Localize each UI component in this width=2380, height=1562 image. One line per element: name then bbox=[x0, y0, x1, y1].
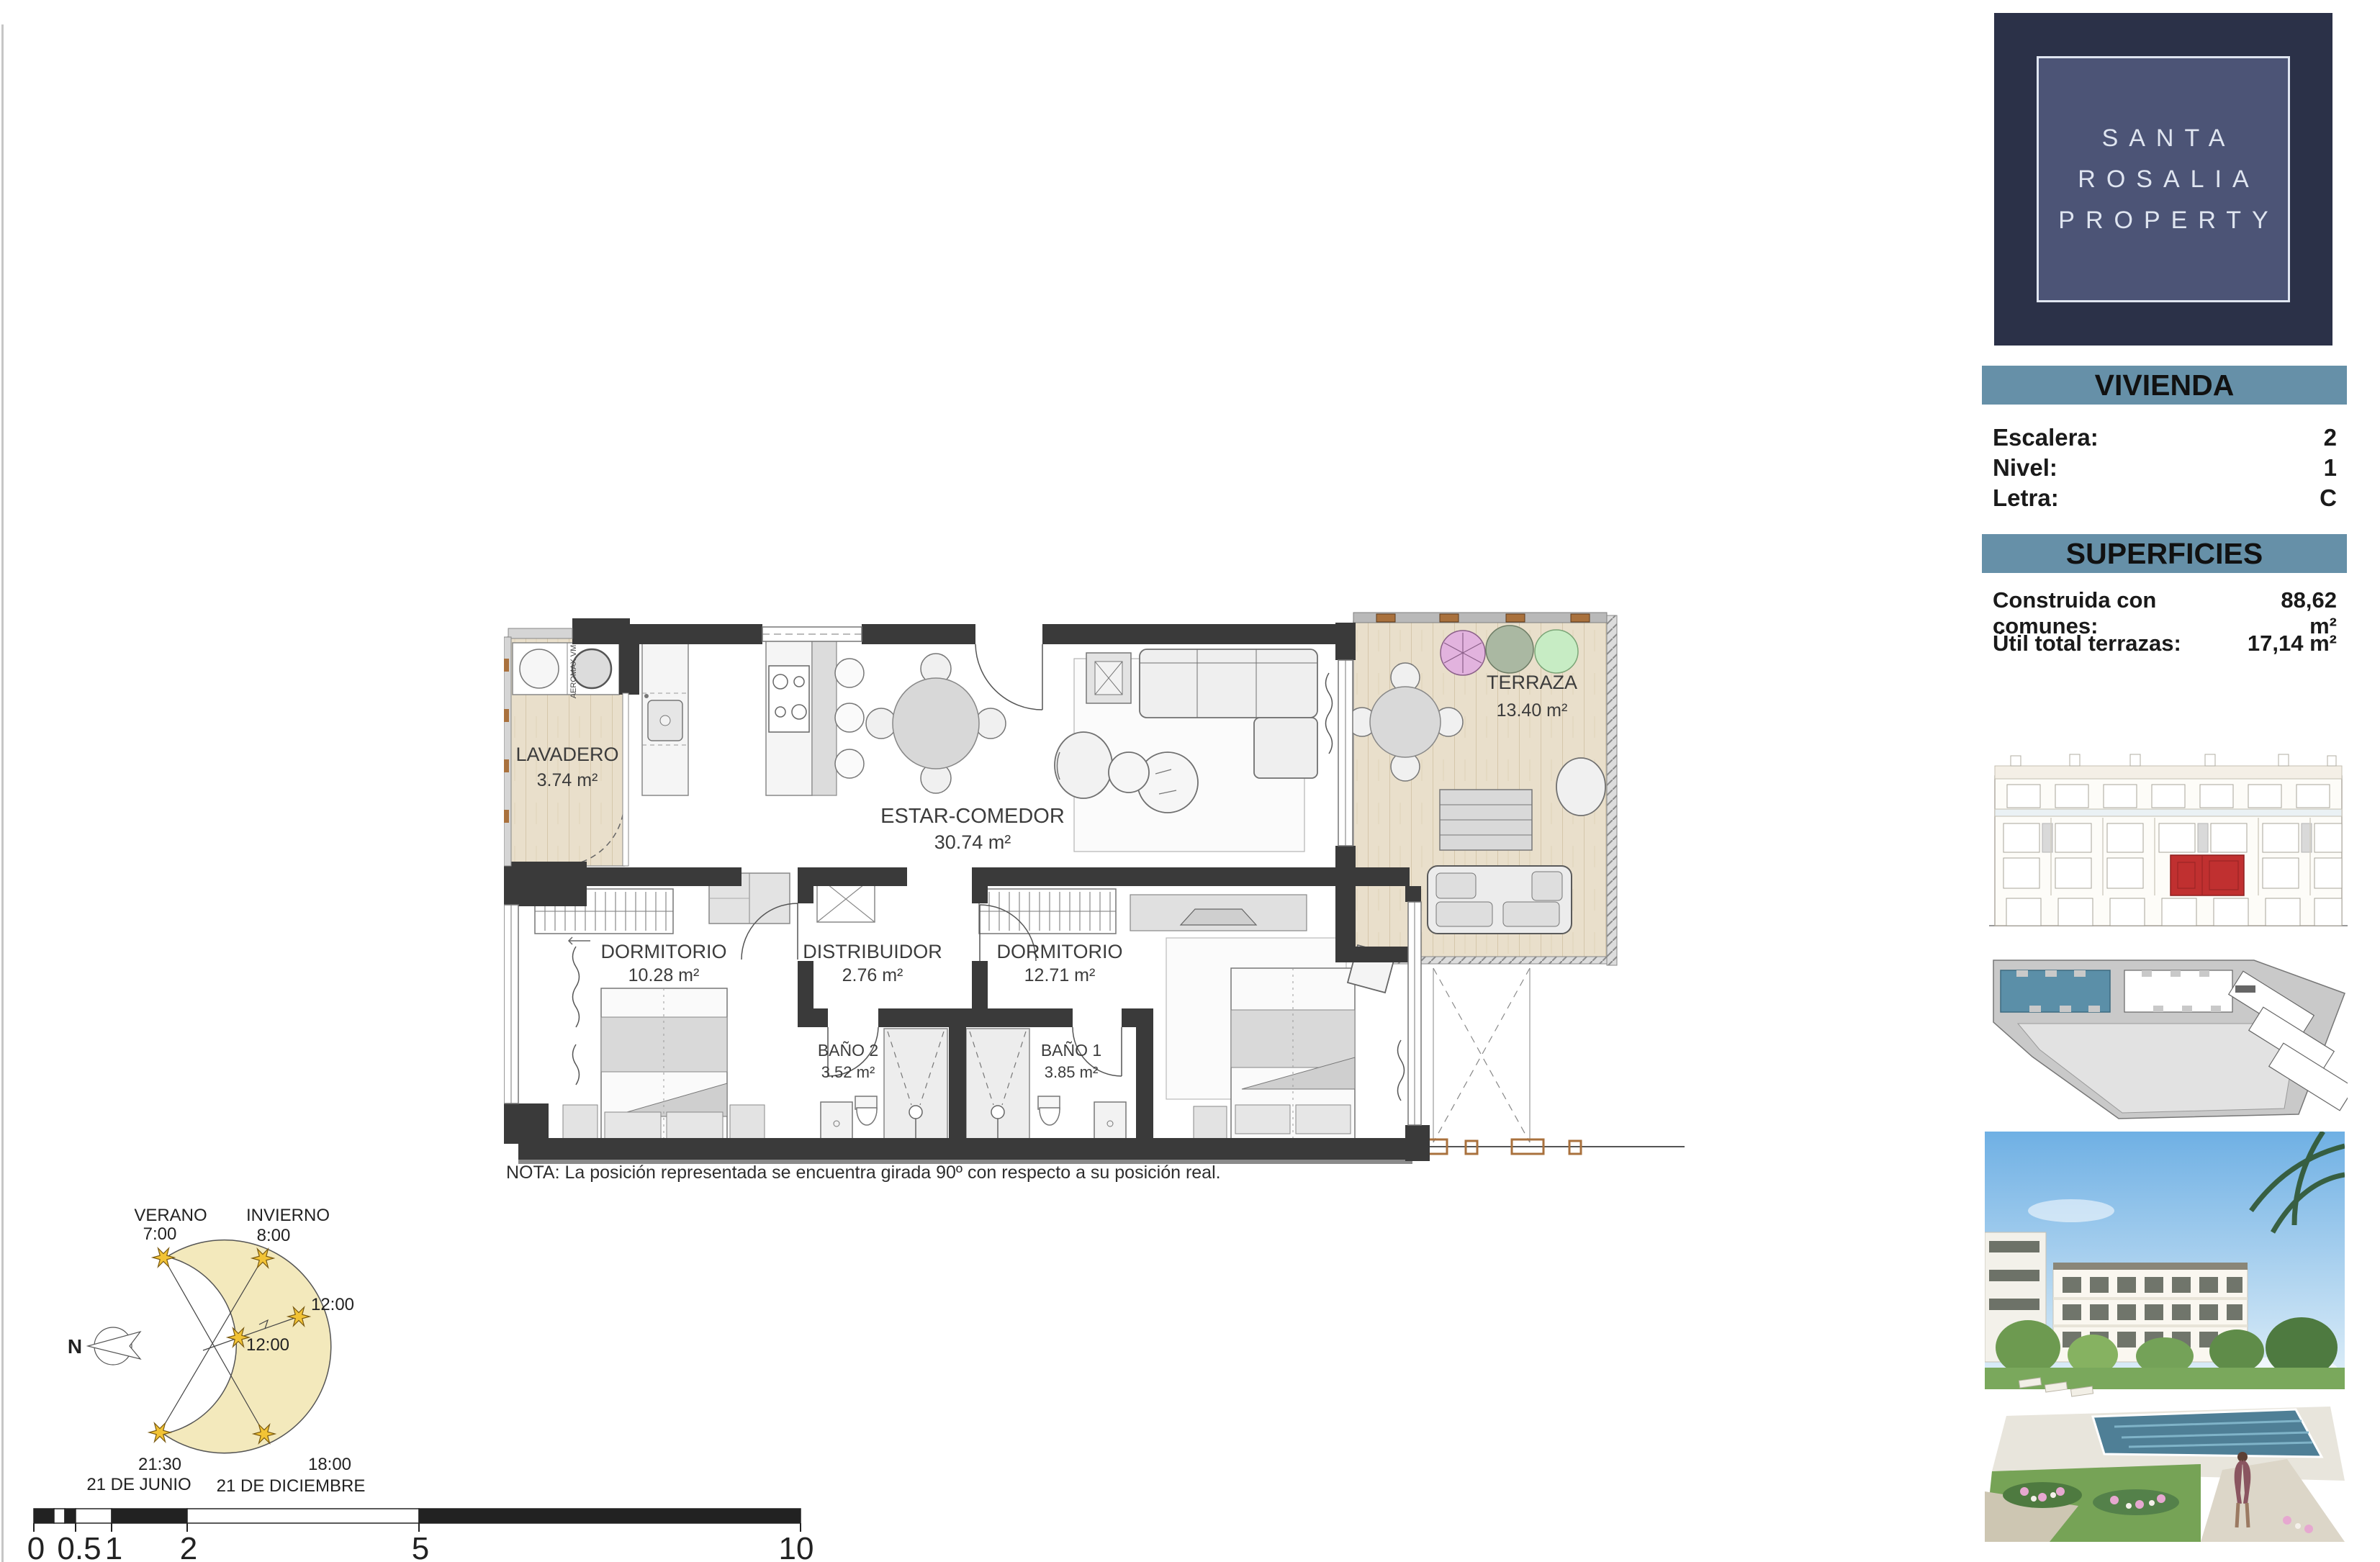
armchair-icon bbox=[1055, 732, 1112, 798]
attic-windows bbox=[2007, 785, 2330, 808]
noon-invierno-label: 12:00 bbox=[311, 1295, 354, 1314]
room-area: 12.71 m² bbox=[1024, 965, 1096, 985]
open-area-below-terraza bbox=[1397, 968, 1685, 1154]
page-left-rule bbox=[1, 24, 4, 1562]
building-elevation bbox=[1989, 743, 2348, 934]
noon-verano-label: 12:00 bbox=[246, 1335, 289, 1355]
superficies-header: SUPERFICIES bbox=[1982, 534, 2347, 573]
hob-icon bbox=[769, 666, 809, 732]
invierno-time: 8:00 bbox=[257, 1226, 291, 1245]
brand-line-2: ROSALIA bbox=[2067, 166, 2259, 194]
washer-icons: AEROMAX VM bbox=[513, 643, 619, 698]
junio-time: 21:30 bbox=[138, 1455, 181, 1474]
toilet-icon bbox=[855, 1096, 877, 1125]
nightstand-icon bbox=[563, 1105, 598, 1142]
nivel-label: Nivel: bbox=[1993, 454, 2057, 482]
invierno-label: INVIERNO bbox=[246, 1206, 330, 1225]
terraza-sofa-icon bbox=[1428, 866, 1572, 934]
verano-time: 7:00 bbox=[143, 1224, 177, 1244]
site-plan bbox=[1989, 949, 2348, 1127]
scale-1: 1 bbox=[105, 1531, 122, 1562]
brand-logo-frame: SANTA ROSALIA PROPERTY bbox=[2037, 56, 2290, 302]
scale-5: 5 bbox=[412, 1531, 429, 1562]
room-label: DISTRIBUIDOR bbox=[803, 941, 942, 962]
util-terrazas-label: Útil total terrazas: bbox=[1993, 631, 2181, 656]
bed-dorm2 bbox=[1166, 938, 1395, 1142]
north-label: N bbox=[68, 1335, 82, 1358]
wardrobe-dorm2 bbox=[979, 889, 1116, 934]
brand-line-3: PROPERTY bbox=[2047, 207, 2278, 235]
dining-table-icon bbox=[866, 654, 1006, 793]
row-construida: Construida con comunes: 88,62 m² bbox=[1993, 599, 2337, 628]
room-label: DORMITORIO bbox=[997, 941, 1123, 962]
letra-label: Letra: bbox=[1993, 484, 2059, 512]
kitchen-island bbox=[766, 638, 864, 795]
scale-05: 0.5 bbox=[57, 1531, 101, 1562]
nightstand-icon bbox=[730, 1105, 765, 1142]
room-label: BAÑO 2 bbox=[818, 1041, 878, 1060]
kitchen-counter bbox=[642, 641, 688, 795]
curtain-squiggle bbox=[573, 947, 580, 1027]
row-letra: Letra: C bbox=[1993, 484, 2337, 513]
stool-icons bbox=[835, 659, 864, 778]
highlighted-building bbox=[2001, 970, 2110, 1012]
escalera-label: Escalera: bbox=[1993, 424, 2099, 451]
room-label: TERRAZA bbox=[1487, 672, 1577, 693]
terraza-chair-icon bbox=[1556, 758, 1605, 816]
scale-10: 10 bbox=[779, 1531, 814, 1562]
row-escalera: Escalera: 2 bbox=[1993, 423, 2337, 452]
letra-value: C bbox=[2320, 484, 2337, 512]
floor-plan: AEROMAX VM bbox=[504, 608, 1692, 1177]
escalera-value: 2 bbox=[2324, 424, 2337, 451]
nightstand-icon bbox=[1194, 1106, 1227, 1142]
room-area: 2.76 m² bbox=[842, 965, 903, 985]
util-terrazas-value: 17,14 m² bbox=[2248, 631, 2337, 656]
plan-note: NOTA: La posición representada se encuen… bbox=[506, 1163, 1442, 1183]
bed-dorm1 bbox=[563, 988, 765, 1142]
room-area: 13.40 m² bbox=[1497, 700, 1568, 721]
vivienda-header: VIVIENDA bbox=[1982, 366, 2347, 405]
verano-label: VERANO bbox=[134, 1206, 207, 1225]
room-area: 30.74 m² bbox=[934, 831, 1011, 853]
diciembre-time: 18:00 bbox=[308, 1455, 351, 1474]
room-area: 10.28 m² bbox=[628, 965, 700, 985]
brand-line-1: SANTA bbox=[2091, 125, 2236, 153]
appliance-label: AEROMAX VM bbox=[569, 645, 578, 699]
diciembre-date: 21 DE DICIEMBRE bbox=[217, 1476, 366, 1496]
junio-date: 21 DE JUNIO bbox=[86, 1475, 191, 1494]
plan-sheet: AEROMAX VM bbox=[0, 0, 2380, 1562]
terraza-table-icon bbox=[1370, 687, 1441, 757]
room-area: 3.85 m² bbox=[1045, 1063, 1099, 1081]
nivel-value: 1 bbox=[2324, 454, 2337, 482]
room-label: ESTAR-COMEDOR bbox=[880, 805, 1065, 828]
curtain-squiggle bbox=[1326, 673, 1333, 754]
pool bbox=[2093, 1409, 2322, 1457]
sun-diagram: N VERANO 7:00 INVIERNO 8:00 12:00 12:00 … bbox=[43, 1195, 403, 1497]
living-area bbox=[1055, 649, 1317, 852]
room-label: DORMITORIO bbox=[601, 941, 727, 962]
property-photo bbox=[1985, 1132, 2345, 1542]
room-label: LAVADERO bbox=[515, 744, 618, 765]
row-nivel: Nivel: 1 bbox=[1993, 453, 2337, 482]
scale-2: 2 bbox=[180, 1531, 197, 1562]
brand-logo: SANTA ROSALIA PROPERTY bbox=[1994, 13, 2332, 346]
tv-console-icon bbox=[1130, 895, 1307, 931]
plant-icons bbox=[1441, 626, 1578, 675]
room-area: 3.52 m² bbox=[821, 1063, 875, 1081]
room-label: BAÑO 1 bbox=[1041, 1041, 1101, 1060]
scale-0: 0 bbox=[27, 1531, 45, 1562]
north-compass: N bbox=[68, 1327, 140, 1365]
toilet-icon bbox=[1038, 1096, 1060, 1125]
scale-bar: 0 0.5 1 2 5 10 bbox=[14, 1499, 878, 1562]
room-area: 3.74 m² bbox=[537, 770, 598, 790]
row-util-terrazas: Útil total terrazas: 17,14 m² bbox=[1993, 629, 2337, 658]
